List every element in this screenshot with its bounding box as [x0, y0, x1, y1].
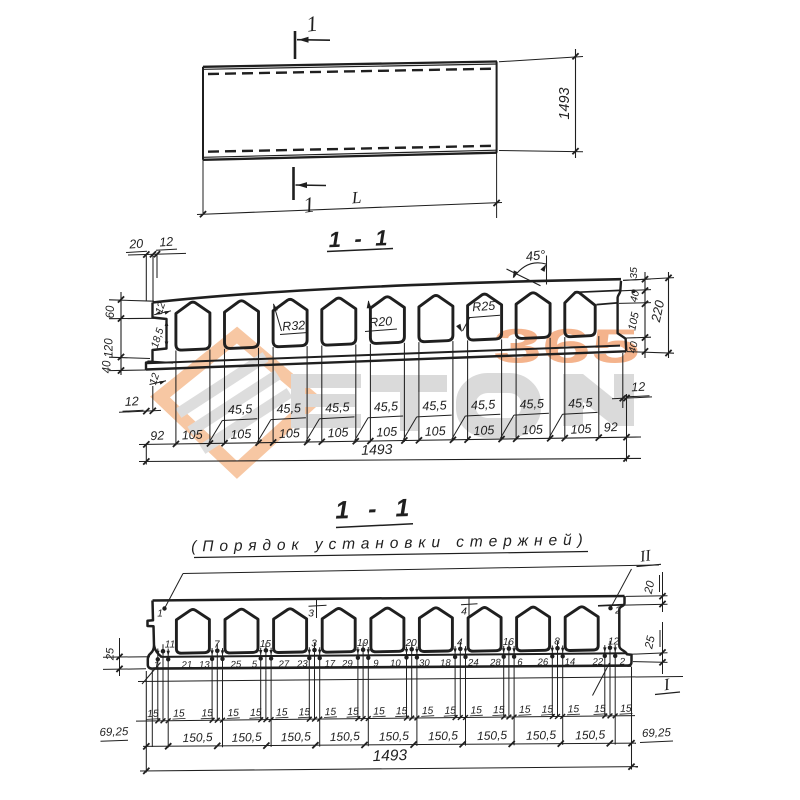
svg-text:R20: R20 [369, 314, 393, 330]
svg-text:105: 105 [327, 425, 349, 440]
svg-text:25: 25 [105, 647, 117, 661]
svg-text:23: 23 [296, 659, 309, 670]
svg-text:69,25: 69,25 [642, 727, 672, 740]
svg-text:2: 2 [619, 656, 626, 667]
svg-text:120: 120 [104, 338, 116, 358]
svg-text:45,5: 45,5 [519, 396, 544, 411]
svg-text:15: 15 [324, 707, 336, 718]
svg-text:105: 105 [424, 424, 446, 439]
svg-text:19: 19 [357, 638, 369, 649]
svg-text:28: 28 [489, 657, 502, 668]
svg-text:15: 15 [147, 709, 159, 720]
svg-text:105: 105 [230, 427, 252, 442]
svg-text:150,5: 150,5 [477, 728, 508, 743]
svg-text:105: 105 [181, 427, 203, 442]
svg-text:105: 105 [473, 423, 495, 438]
svg-text:18: 18 [440, 658, 452, 669]
svg-text:15: 15 [373, 706, 385, 717]
svg-text:15: 15 [493, 705, 505, 716]
svg-text:150,5: 150,5 [281, 729, 312, 744]
svg-text:45°: 45° [525, 247, 546, 264]
svg-text:15: 15 [396, 706, 408, 717]
svg-text:15: 15 [227, 708, 239, 719]
svg-text:150,5: 150,5 [182, 730, 213, 745]
svg-text:7: 7 [214, 639, 220, 650]
svg-text:12: 12 [631, 380, 646, 395]
svg-text:150,5: 150,5 [428, 728, 459, 743]
svg-text:1493: 1493 [372, 747, 407, 765]
svg-text:12: 12 [159, 235, 174, 250]
svg-text:69,25: 69,25 [99, 726, 129, 739]
svg-text:15: 15 [594, 704, 606, 715]
svg-text:13: 13 [199, 659, 211, 670]
svg-text:12: 12 [124, 394, 139, 409]
svg-text:105: 105 [522, 422, 544, 437]
svg-text:10: 10 [390, 658, 402, 669]
svg-text:1: 1 [157, 609, 163, 620]
svg-text:105: 105 [570, 422, 592, 437]
svg-text:15: 15 [620, 703, 632, 714]
svg-text:26: 26 [536, 657, 549, 668]
svg-text:15: 15 [201, 708, 213, 719]
svg-text:150,5: 150,5 [231, 730, 262, 745]
svg-text:1493: 1493 [361, 441, 393, 458]
svg-text:15: 15 [470, 705, 482, 716]
svg-text:45,5: 45,5 [325, 400, 350, 415]
svg-text:R25: R25 [472, 299, 496, 315]
svg-text:150,5: 150,5 [526, 728, 557, 743]
svg-text:11: 11 [165, 640, 175, 651]
svg-text:L: L [350, 188, 362, 208]
svg-text:35: 35 [628, 267, 640, 279]
svg-text:20: 20 [128, 237, 144, 252]
svg-text:45,5: 45,5 [471, 397, 496, 412]
svg-text:4: 4 [457, 637, 463, 648]
svg-text:24: 24 [467, 657, 479, 668]
svg-text:15: 15 [250, 708, 262, 719]
svg-text:45,5: 45,5 [568, 396, 593, 411]
svg-text:15: 15 [276, 707, 288, 718]
svg-text:105: 105 [279, 426, 301, 441]
svg-text:8: 8 [554, 637, 560, 648]
svg-text:40: 40 [102, 360, 114, 373]
svg-text:27: 27 [277, 659, 290, 670]
svg-text:14: 14 [564, 657, 575, 668]
svg-text:R32: R32 [282, 318, 306, 334]
svg-text:15: 15 [173, 708, 185, 719]
svg-text:15: 15 [541, 704, 553, 715]
svg-text:45,5: 45,5 [373, 399, 398, 414]
svg-text:16: 16 [503, 637, 515, 648]
svg-text:29: 29 [341, 658, 354, 669]
svg-text:150,5: 150,5 [379, 729, 410, 744]
svg-text:2: 2 [614, 605, 621, 617]
svg-text:3: 3 [308, 608, 314, 620]
svg-text:15: 15 [444, 705, 456, 716]
svg-text:15: 15 [298, 707, 310, 718]
svg-text:150,5: 150,5 [575, 727, 606, 742]
svg-text:105: 105 [376, 425, 398, 440]
svg-text:17: 17 [324, 658, 336, 669]
svg-text:1-1: 1-1 [335, 493, 429, 524]
svg-text:15: 15 [347, 706, 359, 717]
svg-text:15: 15 [260, 639, 272, 650]
svg-text:15: 15 [567, 704, 579, 715]
svg-text:15: 15 [519, 705, 531, 716]
svg-text:15: 15 [422, 706, 434, 717]
svg-text:45,5: 45,5 [276, 401, 301, 416]
svg-text:92: 92 [603, 420, 618, 435]
svg-text:45,5: 45,5 [228, 402, 253, 417]
svg-text:30: 30 [419, 658, 431, 669]
svg-text:21: 21 [180, 660, 192, 671]
svg-text:25: 25 [229, 659, 242, 670]
svg-text:4: 4 [461, 606, 467, 618]
svg-text:12: 12 [608, 636, 620, 647]
svg-text:150,5: 150,5 [330, 729, 361, 744]
svg-text:3: 3 [311, 639, 317, 650]
svg-text:92: 92 [150, 428, 165, 443]
svg-text:45,5: 45,5 [422, 398, 447, 413]
svg-text:60: 60 [105, 305, 117, 318]
svg-text:1493: 1493 [557, 87, 573, 119]
svg-text:22: 22 [591, 656, 604, 667]
